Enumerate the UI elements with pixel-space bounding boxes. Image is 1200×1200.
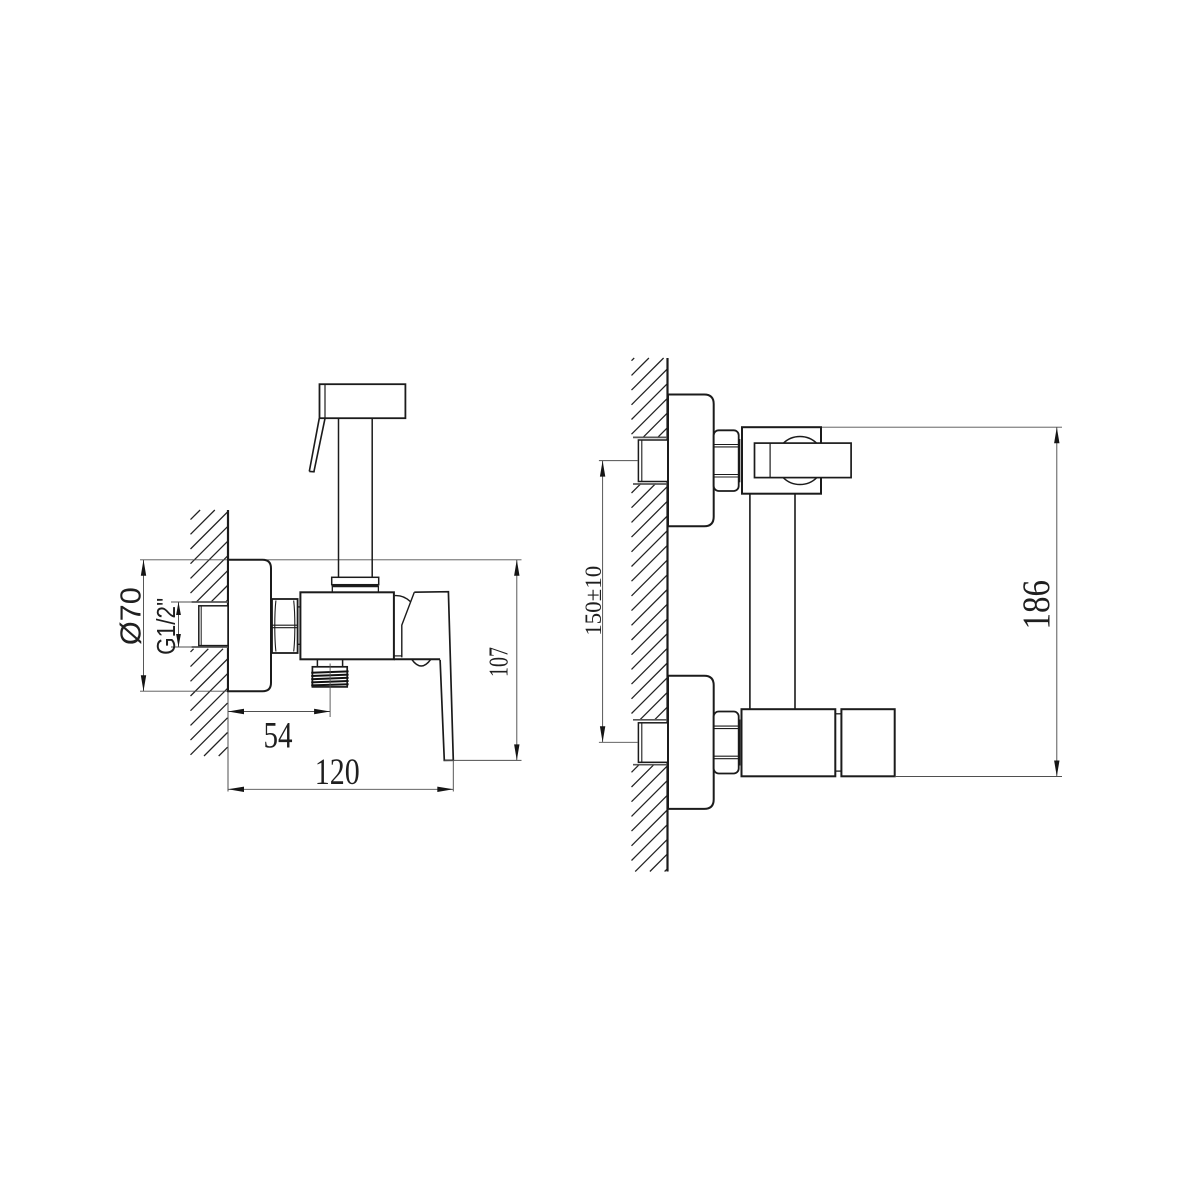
svg-text:54: 54	[264, 716, 293, 757]
svg-text:107: 107	[483, 647, 514, 677]
svg-text:150±10: 150±10	[581, 566, 606, 636]
svg-text:Ø70: Ø70	[116, 587, 148, 645]
svg-text:120: 120	[315, 751, 360, 792]
svg-text:186: 186	[1015, 580, 1058, 630]
svg-text:G1/2": G1/2"	[151, 598, 181, 655]
